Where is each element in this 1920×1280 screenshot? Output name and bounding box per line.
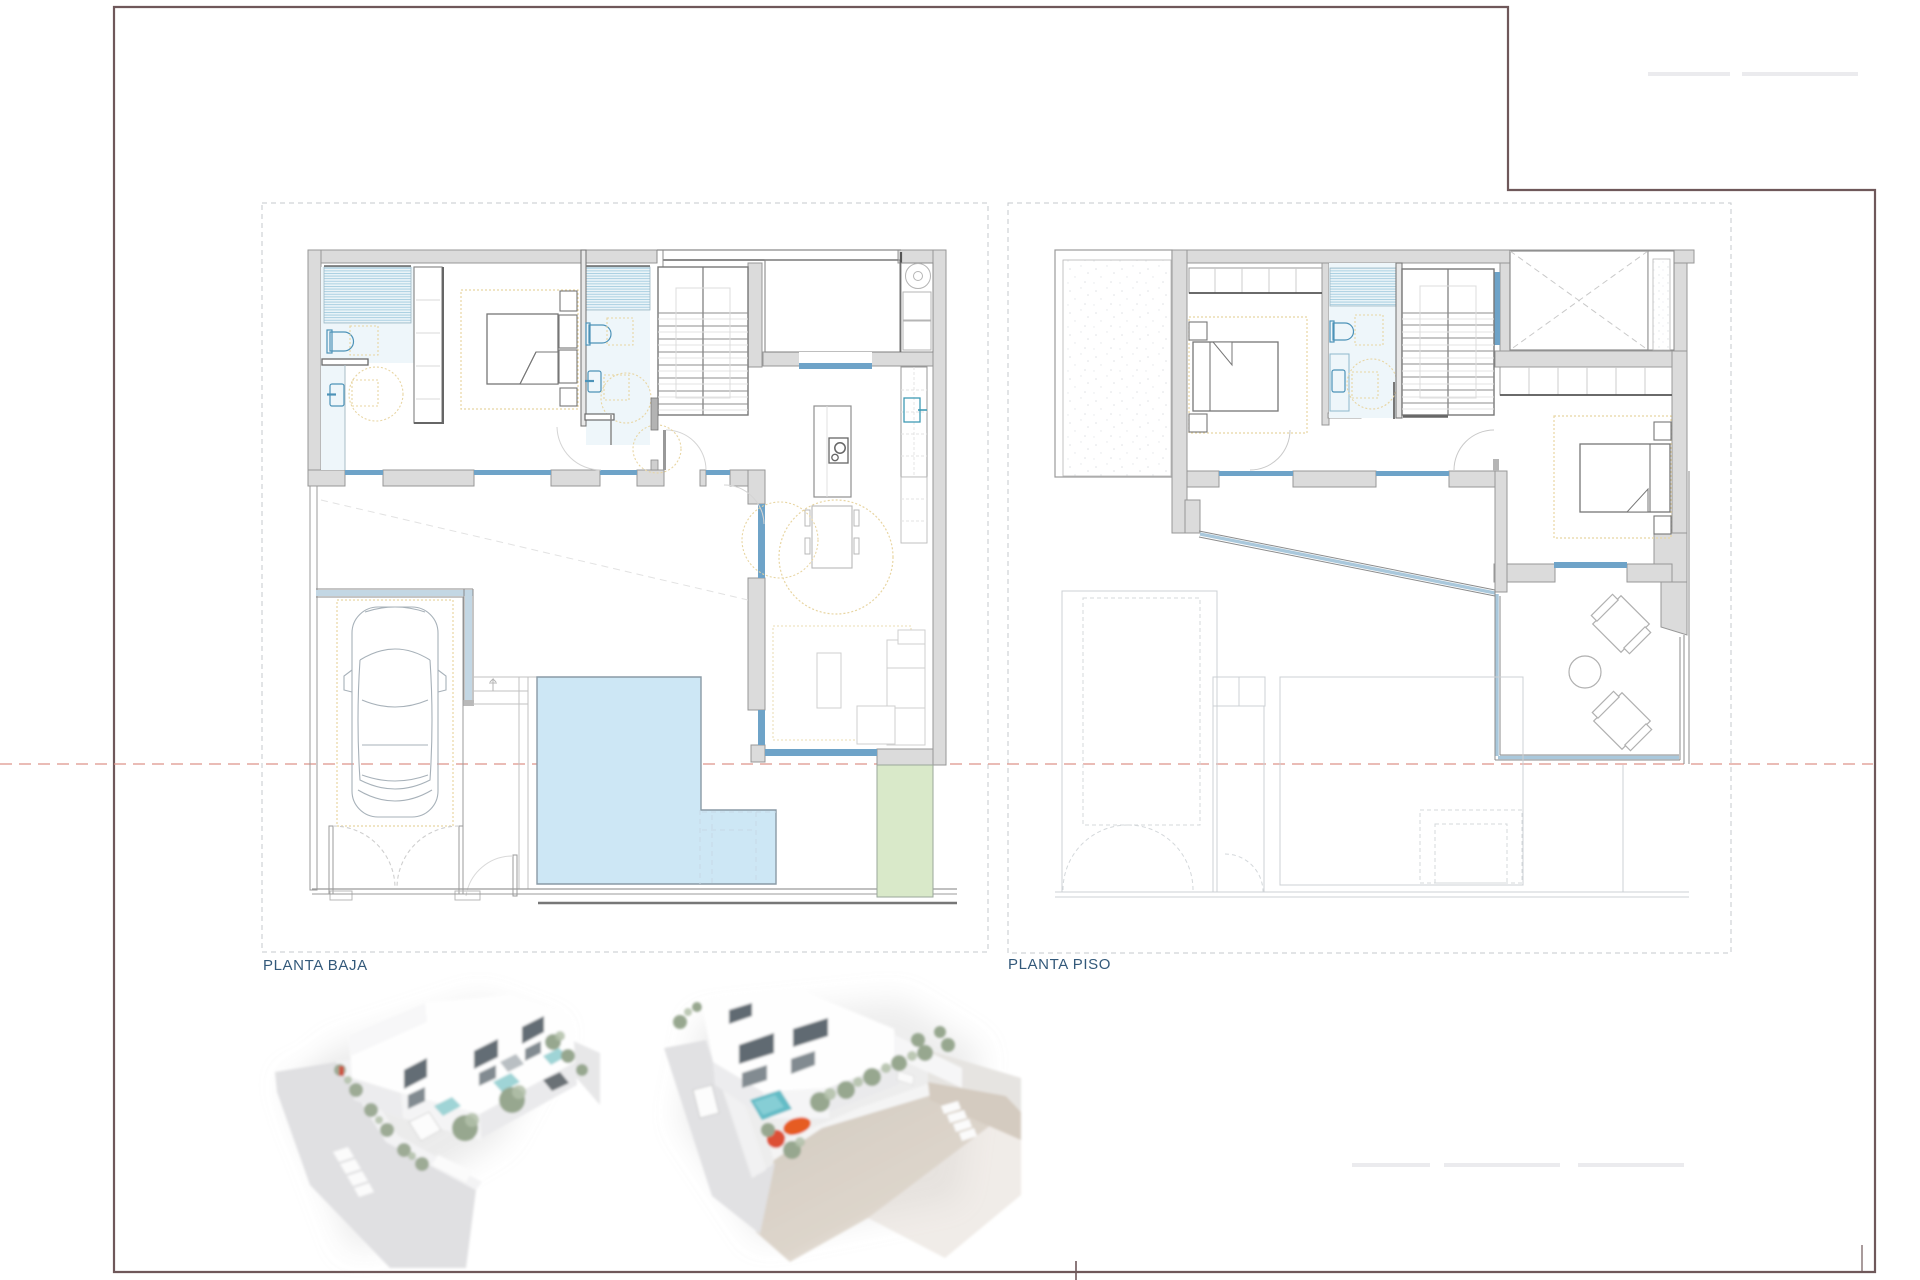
svg-text:PLANTA BAJA: PLANTA BAJA (263, 957, 368, 974)
svg-text:PLANTA PISO: PLANTA PISO (1008, 956, 1111, 973)
